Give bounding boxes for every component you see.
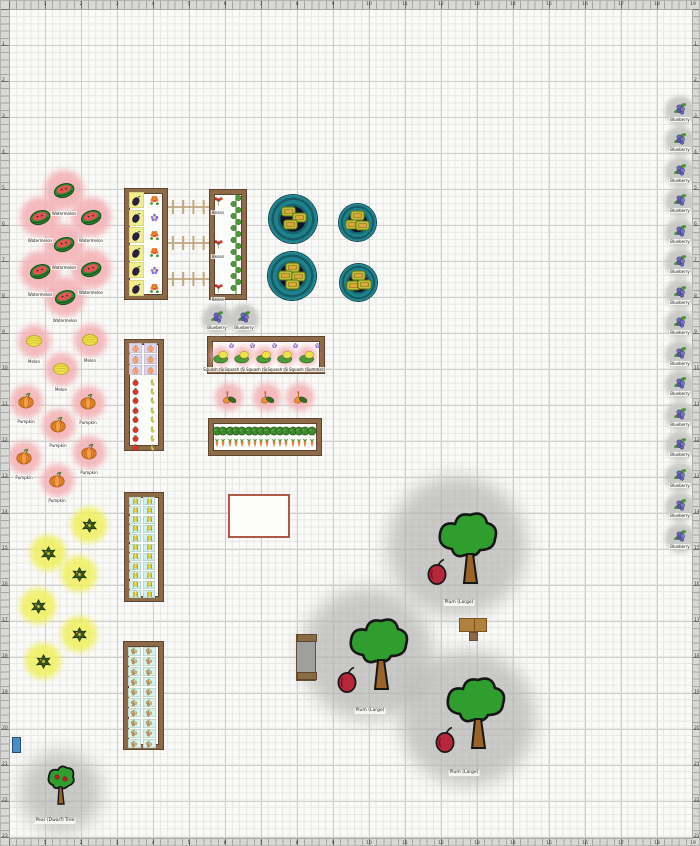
plant-peanut[interactable] <box>144 728 154 738</box>
plant-peanut[interactable] <box>144 708 154 718</box>
plant-blueberry[interactable] <box>673 436 688 451</box>
plant-peanut[interactable] <box>129 656 139 666</box>
plant-peach[interactable] <box>131 355 140 364</box>
plant-pepper[interactable] <box>148 387 157 396</box>
plant-corn[interactable] <box>131 524 140 533</box>
plant-blueberry[interactable] <box>673 497 688 512</box>
plant-peanut[interactable] <box>129 667 139 677</box>
ruler-number: 13 <box>474 2 480 8</box>
label: Blueberry <box>669 391 690 396</box>
ruler-number: 4 <box>152 2 155 8</box>
plant-blueberry[interactable] <box>673 284 688 299</box>
ruler-number: 19 <box>694 691 700 696</box>
ruler-number: 15 <box>546 2 552 8</box>
ruler-right <box>693 1 700 846</box>
plant-winter-squash[interactable] <box>71 626 88 643</box>
plant-corn[interactable] <box>145 552 154 561</box>
label: Blueberry <box>669 483 690 488</box>
ruler-number: 10 <box>366 2 372 8</box>
plant-peach[interactable] <box>131 366 140 375</box>
ruler-number: 2 <box>80 841 83 846</box>
plant-squash[interactable] <box>355 220 370 231</box>
ruler-number: 12 <box>2 439 8 444</box>
label: Watermelon <box>52 318 78 323</box>
structure-outline[interactable] <box>228 494 290 538</box>
ruler-number: 7 <box>694 259 697 264</box>
plant-beans[interactable] <box>212 282 225 295</box>
plant-tomato[interactable] <box>131 425 140 434</box>
ruler-number: 17 <box>618 841 624 846</box>
plant-corn[interactable] <box>145 590 154 599</box>
ruler-number: 2 <box>80 2 83 8</box>
plant-corn[interactable] <box>131 590 140 599</box>
plant-blueberry[interactable] <box>673 467 688 482</box>
ruler-number: 2 <box>694 79 697 84</box>
ruler-number: 5 <box>188 841 191 846</box>
ruler-number: 18 <box>654 841 660 846</box>
plant-corn[interactable] <box>145 571 154 580</box>
plant-peanut[interactable] <box>144 667 154 677</box>
plant-peanut[interactable] <box>129 718 139 728</box>
plant-corn[interactable] <box>131 497 140 506</box>
plant-peanut[interactable] <box>144 656 154 666</box>
plant-pepper[interactable] <box>148 406 157 415</box>
plant-corn[interactable] <box>145 506 154 515</box>
plant-corn[interactable] <box>131 534 140 543</box>
ruler-number: 1 <box>2 43 5 48</box>
plant-corn[interactable] <box>131 543 140 552</box>
label: Pumpkin <box>78 420 97 425</box>
ruler-number: 3 <box>694 115 697 120</box>
ruler-number: 23 <box>694 835 700 840</box>
ruler-number: 20 <box>694 727 700 732</box>
trellis[interactable] <box>168 199 209 215</box>
plant-blueberry[interactable] <box>673 192 688 207</box>
ruler-number: 22 <box>694 799 700 804</box>
plant-peanut[interactable] <box>144 687 154 697</box>
plant-blueberry[interactable] <box>673 131 688 146</box>
ruler-number: 8 <box>694 295 697 300</box>
label: Blueberry <box>669 178 690 183</box>
plant-corn[interactable] <box>131 506 140 515</box>
plant-tomato[interactable] <box>131 434 140 443</box>
blue-bin[interactable] <box>12 737 21 753</box>
plant-gourds[interactable] <box>292 389 308 405</box>
plant-tomato[interactable] <box>131 443 140 452</box>
plant-peanut[interactable] <box>129 708 139 718</box>
plant-winter-squash[interactable] <box>30 598 47 615</box>
tree-dwarf-fruit[interactable] <box>45 764 77 810</box>
plant-corn[interactable] <box>145 562 154 571</box>
bench[interactable] <box>296 634 316 681</box>
plant-peanut[interactable] <box>129 677 139 687</box>
label: Blueberry <box>669 452 690 457</box>
plant-pumpkin[interactable] <box>48 471 66 489</box>
plant-corn[interactable] <box>131 580 140 589</box>
plant-peanut[interactable] <box>144 677 154 687</box>
label: Beans <box>211 210 225 215</box>
plant-watermelon[interactable] <box>54 286 76 308</box>
ruler-left <box>1 1 9 846</box>
plant-pepper[interactable] <box>148 378 157 387</box>
label: Pumpkin <box>14 475 33 480</box>
label: Watermelon <box>51 265 77 270</box>
plant-squash[interactable] <box>357 279 372 290</box>
plant-melon[interactable] <box>25 332 43 350</box>
plant-melon[interactable] <box>81 331 99 349</box>
label: Plum (Large) <box>449 770 480 776</box>
label: Melon <box>27 359 41 364</box>
plant-blueberry[interactable] <box>673 406 688 421</box>
ruler-number: 6 <box>224 841 227 846</box>
plant-winter-squash[interactable] <box>81 517 98 534</box>
plant-blueberry[interactable] <box>673 101 688 116</box>
ruler-number: 16 <box>694 583 700 588</box>
ruler-number: 3 <box>116 841 119 846</box>
ruler-number: 18 <box>694 655 700 660</box>
ruler-number: 6 <box>224 2 227 8</box>
plant-peanut[interactable] <box>129 739 139 749</box>
label: Beans <box>211 297 225 302</box>
label: Melon <box>54 387 68 392</box>
label: Pumpkin <box>47 498 66 503</box>
label: Watermelon <box>27 238 53 243</box>
plant-marigold[interactable] <box>148 246 161 259</box>
plant-squash[interactable] <box>285 279 300 290</box>
plant-blueberry[interactable] <box>673 162 688 177</box>
label: Pumpkin <box>79 470 98 475</box>
plant-lavender[interactable] <box>313 341 322 350</box>
plant-lavender[interactable] <box>248 341 257 350</box>
plant-peach[interactable] <box>146 344 155 353</box>
ruler-number: 1 <box>694 43 697 48</box>
plant-corn[interactable] <box>145 524 154 533</box>
plant-pumpkin[interactable] <box>49 416 67 434</box>
ruler-number: 19 <box>690 2 696 8</box>
ruler-number: 20 <box>2 727 8 732</box>
label: Watermelon <box>51 211 77 216</box>
plant-cucumber-vine[interactable] <box>230 194 242 294</box>
label: Beans <box>211 254 225 259</box>
ruler-number: 17 <box>694 619 700 624</box>
ruler-number: 1 <box>44 2 47 8</box>
plant-marigold[interactable] <box>148 194 161 207</box>
ruler-number: 18 <box>654 2 660 8</box>
plant-marigold[interactable] <box>148 282 161 295</box>
plant-corn[interactable] <box>131 515 140 524</box>
ruler-number: 7 <box>260 2 263 8</box>
ruler-number: 8 <box>296 2 299 8</box>
ruler-number: 1 <box>44 841 47 846</box>
plant-watermelon[interactable] <box>80 258 102 280</box>
ruler-number: 10 <box>2 367 8 372</box>
label: Blueberry <box>233 325 254 330</box>
ruler-number: 5 <box>188 2 191 8</box>
plant-pumpkin[interactable] <box>15 448 33 466</box>
label: Blueberry <box>669 361 690 366</box>
plant-watermelon[interactable] <box>29 206 51 228</box>
plant-squash[interactable] <box>283 219 298 230</box>
ruler-number: 9 <box>694 331 697 336</box>
ruler-number: 21 <box>694 763 700 768</box>
plant-winter-squash[interactable] <box>71 566 88 583</box>
plant-corn[interactable] <box>131 562 140 571</box>
plant-melon_plant[interactable] <box>213 348 230 365</box>
ruler-number: 5 <box>694 187 697 192</box>
plant-watermelon[interactable] <box>53 233 75 255</box>
label: Blueberry <box>669 513 690 518</box>
plant-pumpkin[interactable] <box>79 393 97 411</box>
label: Watermelon <box>78 290 104 295</box>
label: Blueberry <box>206 325 227 330</box>
label: Blueberry <box>669 239 690 244</box>
plant-lavender[interactable] <box>227 341 236 350</box>
plant-eggplant[interactable] <box>130 246 143 259</box>
plant-corn[interactable] <box>145 580 154 589</box>
ruler-number: 14 <box>2 511 8 516</box>
plant-pumpkin[interactable] <box>80 443 98 461</box>
plant-melon_plant[interactable] <box>234 348 251 365</box>
plant-peanut[interactable] <box>129 646 139 656</box>
ruler-number: 3 <box>2 115 5 120</box>
plant-blueberry[interactable] <box>673 314 688 329</box>
ruler-number: 4 <box>152 841 155 846</box>
label: Pumpkin <box>16 419 35 424</box>
ruler-number: 11 <box>2 403 8 408</box>
plant-blueberry[interactable] <box>673 253 688 268</box>
fruit-plum <box>336 665 358 693</box>
plant-peanut[interactable] <box>129 698 139 708</box>
plant-pepper[interactable] <box>148 415 157 424</box>
plant-tomato[interactable] <box>131 387 140 396</box>
ruler-number: 14 <box>510 2 516 8</box>
ruler-number: 19 <box>2 691 8 696</box>
plant-lavender[interactable] <box>270 341 279 350</box>
plant-hedge[interactable] <box>307 426 317 436</box>
plant-eggplant[interactable] <box>130 211 143 224</box>
ruler-number: 13 <box>2 475 8 480</box>
label: Blueberry <box>669 330 690 335</box>
label: Blueberry <box>669 422 690 427</box>
ruler-number: 7 <box>2 259 5 264</box>
plant-lavender[interactable] <box>291 341 300 350</box>
plant-pumpkin[interactable] <box>17 392 35 410</box>
plant-peanut[interactable] <box>129 687 139 697</box>
ruler-number: 3 <box>116 2 119 8</box>
ruler-number: 4 <box>694 151 697 156</box>
wood-structure[interactable] <box>459 618 487 632</box>
plant-corn[interactable] <box>145 515 154 524</box>
plant-pepper[interactable] <box>148 434 157 443</box>
plant-carrot[interactable] <box>307 438 317 448</box>
plant-lavender[interactable] <box>148 264 161 277</box>
ruler-top <box>1 1 700 9</box>
plant-pepper[interactable] <box>148 396 157 405</box>
plant-peanut[interactable] <box>144 698 154 708</box>
plant-watermelon[interactable] <box>53 179 75 201</box>
ruler-number: 23 <box>2 835 8 840</box>
ruler-number: 14 <box>694 511 700 516</box>
label: Melon <box>83 358 97 363</box>
ruler-number: 6 <box>694 223 697 228</box>
plant-blueberry[interactable] <box>673 223 688 238</box>
label: Watermelon <box>78 238 104 243</box>
ruler-number: 11 <box>402 2 408 8</box>
plant-melon_plant[interactable] <box>277 348 294 365</box>
plant-blueberry[interactable] <box>237 309 252 324</box>
fruit-plum <box>434 725 456 753</box>
plant-corn[interactable] <box>145 534 154 543</box>
plant-tomato[interactable] <box>131 415 140 424</box>
plant-peanut[interactable] <box>144 646 154 656</box>
plant-peach[interactable] <box>131 344 140 353</box>
label: Pear (Dwarf) Tree <box>34 818 75 824</box>
label: Blueberry <box>669 147 690 152</box>
ruler-number: 21 <box>2 763 8 768</box>
plant-peanut[interactable] <box>144 718 154 728</box>
plant-blueberry[interactable] <box>673 375 688 390</box>
plant-blueberry[interactable] <box>673 345 688 360</box>
ruler-number: 15 <box>546 841 552 846</box>
plant-eggplant[interactable] <box>130 194 143 207</box>
bench-end <box>297 672 317 680</box>
label: Blueberry <box>669 269 690 274</box>
ruler-number: 9 <box>332 841 335 846</box>
plant-corn[interactable] <box>131 571 140 580</box>
ruler-number: 13 <box>474 841 480 846</box>
plant-beans[interactable] <box>212 195 225 208</box>
label: Squash (Summer) <box>288 367 326 372</box>
ruler-number: 8 <box>2 295 5 300</box>
ruler-number: 16 <box>582 2 588 8</box>
ruler-number: 8 <box>296 841 299 846</box>
plant-eggplant[interactable] <box>130 282 143 295</box>
wood-structure-divider <box>474 619 475 631</box>
ruler-bottom <box>1 839 700 846</box>
plant-eggplant[interactable] <box>130 264 143 277</box>
plant-marigold[interactable] <box>148 229 161 242</box>
ruler-number: 10 <box>694 367 700 372</box>
plant-melon[interactable] <box>52 360 70 378</box>
plant-corn[interactable] <box>145 543 154 552</box>
ruler-number: 15 <box>694 547 700 552</box>
plant-peanut[interactable] <box>144 739 154 749</box>
plant-tomato[interactable] <box>131 396 140 405</box>
label: Blueberry <box>669 300 690 305</box>
ruler-number: 17 <box>618 2 624 8</box>
ruler-number: 4 <box>2 151 5 156</box>
plant-blueberry[interactable] <box>673 528 688 543</box>
label: Plum (Large) <box>355 708 386 714</box>
ruler-number: 13 <box>694 475 700 480</box>
ruler-number: 19 <box>690 841 696 846</box>
plant-eggplant[interactable] <box>130 229 143 242</box>
ruler-number: 14 <box>510 841 516 846</box>
plant-melon_plant[interactable] <box>256 348 273 365</box>
ruler-number: 9 <box>2 331 5 336</box>
trellis[interactable] <box>168 271 209 287</box>
bed-carrots[interactable] <box>209 419 321 455</box>
plant-watermelon[interactable] <box>80 206 102 228</box>
ruler-number: 10 <box>366 841 372 846</box>
label: Watermelon <box>27 292 53 297</box>
ruler-number: 16 <box>582 841 588 846</box>
trellis[interactable] <box>168 235 209 251</box>
ruler-number: 9 <box>332 2 335 8</box>
plant-peach[interactable] <box>146 355 155 364</box>
ruler-number: 17 <box>2 619 8 624</box>
plant-winter-squash[interactable] <box>40 545 57 562</box>
plant-tomato[interactable] <box>131 406 140 415</box>
ruler-number: 11 <box>402 841 408 846</box>
plant-melon_plant[interactable] <box>299 348 316 365</box>
ruler-number: 12 <box>694 439 700 444</box>
wood-structure-leg <box>469 632 478 641</box>
ruler-number: 22 <box>2 799 8 804</box>
ruler-number: 16 <box>2 583 8 588</box>
plant-lavender[interactable] <box>148 211 161 224</box>
plant-gourds[interactable] <box>259 389 275 405</box>
plant-winter-squash[interactable] <box>35 653 52 670</box>
plant-corn[interactable] <box>145 497 154 506</box>
plant-gourds[interactable] <box>221 389 237 405</box>
plant-beans[interactable] <box>212 238 225 251</box>
bench-end <box>297 634 317 642</box>
plant-tomato[interactable] <box>131 378 140 387</box>
ruler-number: 6 <box>2 223 5 228</box>
label: Blueberry <box>669 208 690 213</box>
ruler-number: 5 <box>2 187 5 192</box>
ruler-number: 11 <box>694 403 700 408</box>
plant-peanut[interactable] <box>129 728 139 738</box>
plant-corn[interactable] <box>131 552 140 561</box>
garden-plan-canvas[interactable]: BeansBeansBeansSquash (Summer)Squash (Su… <box>0 0 700 846</box>
fruit-plum <box>426 557 448 585</box>
ruler-number: 12 <box>438 2 444 8</box>
plant-watermelon[interactable] <box>29 260 51 282</box>
label: Pumpkin <box>48 443 67 448</box>
ruler-number: 2 <box>2 79 5 84</box>
plant-pepper[interactable] <box>148 425 157 434</box>
ruler-number: 15 <box>2 547 8 552</box>
plant-pepper[interactable] <box>148 443 157 452</box>
label: Blueberry <box>669 544 690 549</box>
ruler-number: 7 <box>260 841 263 846</box>
plant-peach[interactable] <box>146 366 155 375</box>
label: Plum (Large) <box>444 600 475 606</box>
ruler-number: 18 <box>2 655 8 660</box>
ruler-number: 12 <box>438 841 444 846</box>
plant-blueberry[interactable] <box>210 309 225 324</box>
label: Blueberry <box>669 117 690 122</box>
